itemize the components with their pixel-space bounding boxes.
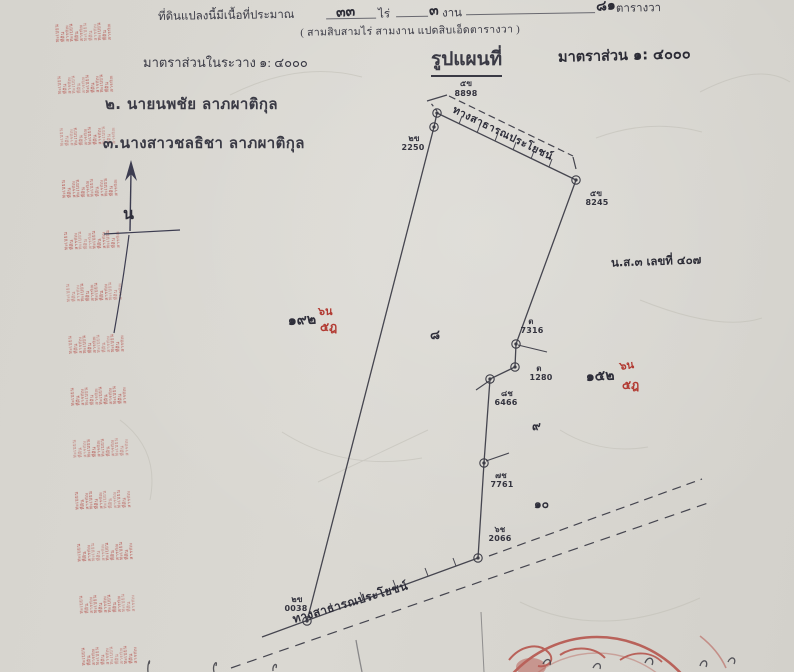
point-code: ๕ฃ — [460, 79, 472, 88]
point-code: ๕ฃ — [590, 189, 602, 198]
point-number: 8898 — [454, 89, 477, 98]
annotation-red: ๖น — [618, 358, 636, 373]
point-code: ๘ช — [501, 389, 513, 398]
point-code: ต — [536, 364, 541, 373]
handwritten-annotation-right: ๑๕๒ ๖น ๕ฎ — [585, 358, 639, 392]
handwritten-annotation-left: ๑๙๒ ๖น ๕ฎ — [287, 305, 337, 334]
monument — [572, 176, 580, 184]
point-code: ๗ช — [495, 471, 507, 480]
point-number: 7761 — [490, 480, 513, 489]
monument-labels: ๕ฃ 8898 ๒ฃ 2250 ๕ฃ 8245 ต 7316 ต 1280 ๘ช… — [284, 79, 608, 613]
seal-ink-blob — [516, 658, 546, 672]
cadastral-map: ๕ฃ 8898 ๒ฃ 2250 ๕ฃ 8245 ต 7316 ต 1280 ๘ช… — [0, 0, 794, 672]
parcel-number: ๙ — [532, 419, 541, 433]
north-label: น — [123, 204, 134, 223]
road-bottom-label: ทางสาธารณประโยชน์ — [291, 578, 410, 626]
point-number: 2066 — [488, 534, 511, 543]
annotation-black: ๑๙๒ — [287, 312, 316, 329]
point-code: ๒ฃ — [291, 595, 302, 604]
annotation-red: ๕ฎ — [320, 320, 337, 334]
parcel-number: ๘ — [430, 328, 440, 343]
point-number: 6466 — [494, 398, 517, 407]
annotation-red: ๕ฎ — [622, 378, 639, 392]
red-seal-stamp — [482, 636, 726, 672]
annotation-red: ๖น — [317, 305, 333, 318]
paper-creases — [120, 71, 790, 621]
boundary-east — [478, 180, 576, 558]
parcel-number: ๑๐ — [534, 497, 549, 511]
point-number: 2250 — [401, 143, 424, 152]
north-arrow: น — [104, 160, 180, 333]
point-number: 8245 — [585, 198, 608, 207]
point-number: 1280 — [529, 373, 552, 382]
cutoff-handwriting — [148, 612, 735, 672]
boundary-north — [437, 113, 576, 180]
land-deed-scan: ทะเบียนที่ดินสารบัญทะเบียนที่ดินสารบัญทะ… — [0, 0, 794, 672]
annotation-black: ๑๕๒ — [585, 368, 615, 385]
boundary-west — [307, 127, 434, 621]
point-code: ๒ฃ — [408, 134, 419, 143]
point-code: ต — [528, 317, 533, 326]
point-code: ๖ช — [494, 525, 506, 534]
road-hatching — [330, 116, 552, 611]
point-number: 7316 — [520, 326, 543, 335]
road-top-label: ทางสาธารณประโยชน์ — [451, 103, 556, 163]
